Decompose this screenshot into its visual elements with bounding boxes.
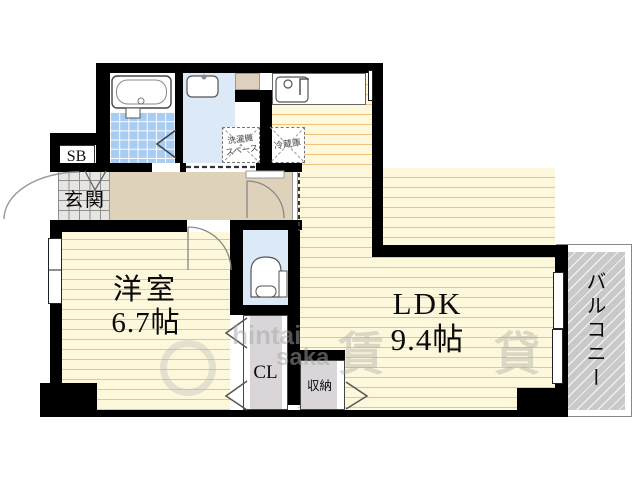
wall-fridge-left [260, 100, 272, 163]
bath-door-threshold [152, 163, 180, 172]
wall-toilet-bottom [243, 305, 300, 315]
bathroom-tiles [110, 112, 175, 163]
watermark-latin-bottom: saka [276, 344, 329, 372]
western-room-size: 6.7帖 [62, 307, 230, 340]
entrance-label: 玄関 [58, 190, 112, 212]
wall-top [96, 63, 383, 73]
wall-bottom [97, 410, 517, 417]
wall-corner-block [40, 383, 97, 417]
wall-toilet-top [243, 220, 302, 230]
wall-toilet-right [288, 230, 300, 405]
hallway-floor [110, 172, 292, 220]
western-room-label: 洋室 6.7帖 [62, 274, 230, 341]
wall-hall-top-right [256, 163, 302, 172]
wall-toilet-left [230, 220, 243, 315]
wall-bath-left [96, 73, 110, 172]
wall-west-top [50, 220, 187, 232]
watermark-kanji: 賃貸 [338, 318, 640, 384]
kitchen-counter [272, 73, 366, 105]
wall-hall-top-left [58, 163, 152, 172]
kitchen-window [368, 70, 373, 101]
refrigerator-box: 冷蔵庫 [270, 127, 305, 163]
toilet-room [243, 230, 288, 305]
wall-bath-wash-divider [175, 73, 183, 163]
refrigerator-label: 冷蔵庫 [270, 137, 304, 153]
western-door-threshold [187, 220, 230, 232]
floorplan: バルコニー CL 収納 SB 洗濯機 スペース 冷蔵庫 [0, 0, 640, 480]
watermark-circle [160, 340, 216, 396]
wall-hall-top-stub [180, 163, 186, 172]
wall-kitchen-right [372, 63, 383, 257]
hall-ldk-pocket [292, 172, 298, 220]
wall-sb-top [50, 133, 110, 145]
washer-space-box: 洗濯機 スペース [222, 127, 260, 163]
water-heater-box [235, 73, 260, 90]
western-room-window [48, 238, 62, 304]
storage-label: 収納 [301, 379, 338, 393]
ldk-name: LDK [300, 286, 555, 322]
wall-ldk-top [372, 245, 568, 257]
western-room-name: 洋室 [62, 274, 230, 307]
